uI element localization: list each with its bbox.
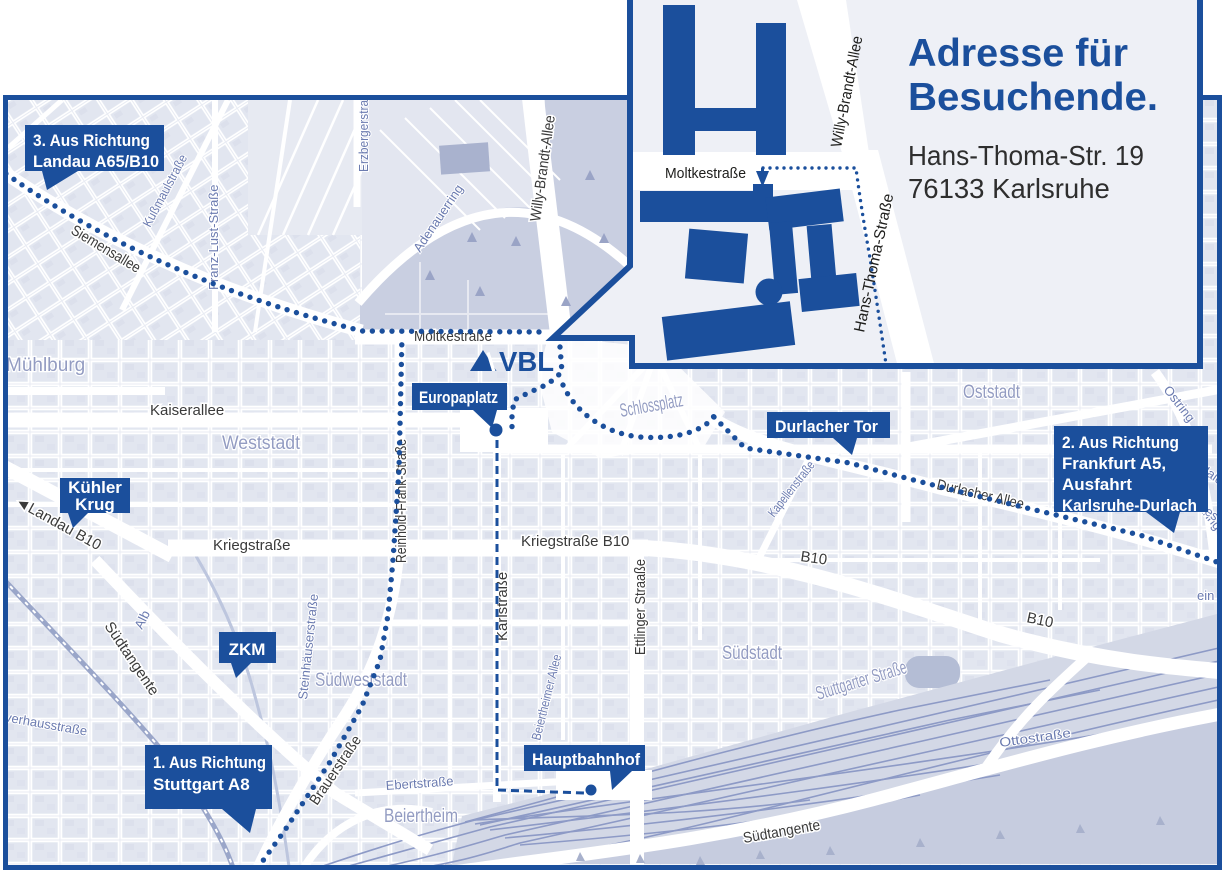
- svg-text:ein: ein: [1197, 588, 1214, 603]
- svg-text:Frankfurt A5,: Frankfurt A5,: [1062, 454, 1166, 473]
- svg-text:Franz-Lust-Straße: Franz-Lust-Straße: [206, 185, 221, 290]
- svg-text:2. Aus Richtung: 2. Aus Richtung: [1062, 433, 1179, 452]
- svg-text:Oststadt: Oststadt: [963, 382, 1021, 403]
- svg-text:Adresse für: Adresse für: [908, 32, 1128, 75]
- svg-text:Beiertheim: Beiertheim: [384, 806, 458, 827]
- svg-text:Mühlburg: Mühlburg: [6, 355, 85, 376]
- svg-text:Landau A65/B10: Landau A65/B10: [33, 152, 159, 171]
- svg-text:Weststadt: Weststadt: [222, 433, 301, 454]
- svg-text:Stuttgart A8: Stuttgart A8: [153, 775, 250, 794]
- svg-text:Hans-Thoma-Str. 19: Hans-Thoma-Str. 19: [908, 140, 1144, 171]
- svg-text:Kriegstraße: Kriegstraße: [213, 537, 291, 554]
- svg-text:Kaiserallee: Kaiserallee: [150, 402, 224, 419]
- svg-text:Karlstraße: Karlstraße: [494, 572, 511, 641]
- svg-text:Ausfahrt: Ausfahrt: [1062, 475, 1132, 494]
- svg-text:Krug: Krug: [75, 495, 115, 514]
- svg-text:Südstadt: Südstadt: [722, 643, 783, 664]
- svg-text:Moltkestraße: Moltkestraße: [665, 165, 746, 182]
- svg-text:VBL: VBL: [499, 346, 554, 377]
- svg-text:Hauptbahnhof: Hauptbahnhof: [532, 750, 640, 769]
- svg-text:1. Aus Richtung: 1. Aus Richtung: [153, 753, 266, 772]
- svg-text:Karlsruhe-Durlach: Karlsruhe-Durlach: [1062, 496, 1197, 515]
- svg-text:3. Aus Richtung: 3. Aus Richtung: [33, 131, 150, 150]
- svg-text:76133 Karlsruhe: 76133 Karlsruhe: [908, 173, 1110, 204]
- svg-text:Kriegstraße B10: Kriegstraße B10: [521, 533, 629, 550]
- svg-text:Ettlinger Straaße: Ettlinger Straaße: [632, 559, 649, 655]
- svg-text:Besuchende.: Besuchende.: [908, 76, 1158, 119]
- svg-text:ZKM: ZKM: [229, 640, 266, 659]
- svg-text:Südweststadt: Südweststadt: [315, 670, 408, 691]
- svg-text:Durlacher Tor: Durlacher Tor: [775, 417, 878, 436]
- svg-text:Europaplatz: Europaplatz: [419, 388, 498, 407]
